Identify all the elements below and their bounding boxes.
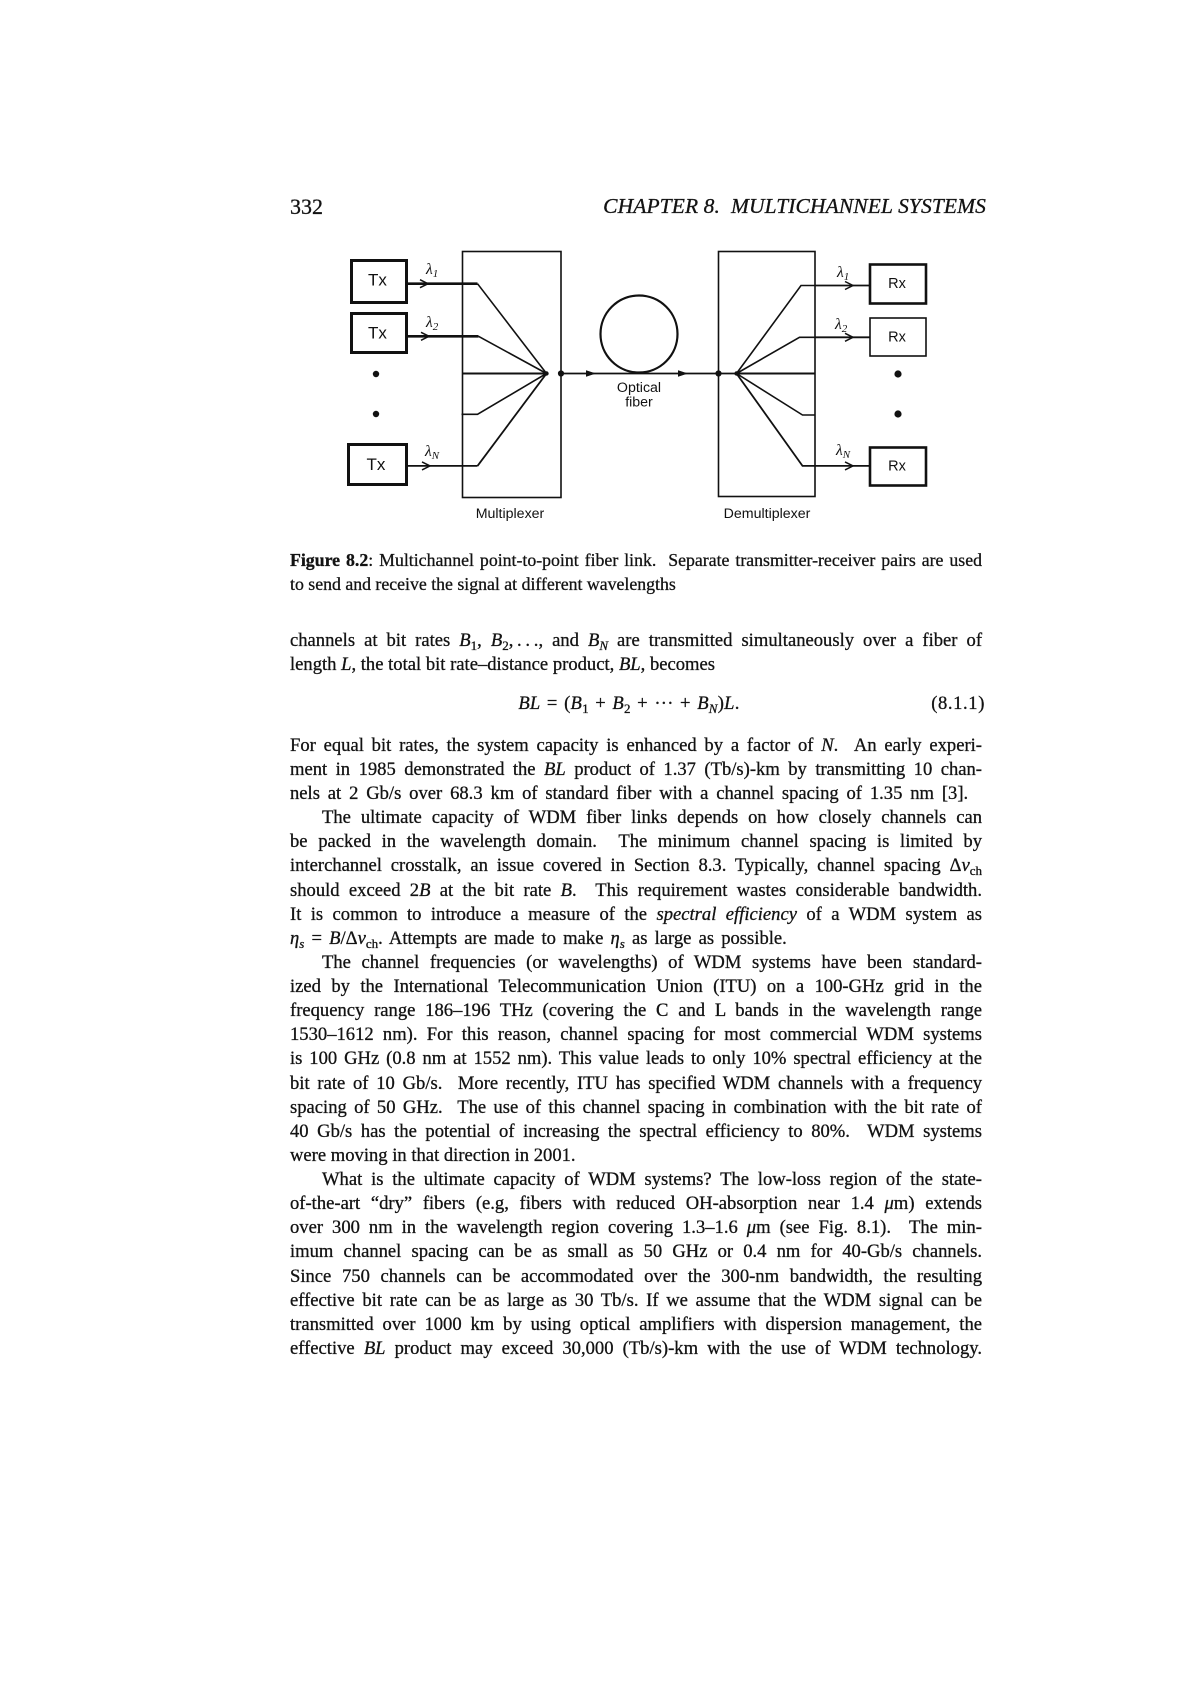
svg-text:Tx: Tx (367, 455, 386, 474)
svg-text:fiber: fiber (625, 395, 653, 411)
svg-text:λN: λN (835, 442, 851, 461)
svg-text:λ2: λ2 (834, 316, 848, 335)
svg-text:Demultiplexer: Demultiplexer (724, 506, 811, 522)
svg-text:Tx: Tx (368, 271, 387, 290)
svg-text:Rx: Rx (888, 459, 906, 475)
svg-text:λ1: λ1 (836, 264, 849, 283)
svg-text:Rx: Rx (888, 276, 906, 292)
svg-text:Multiplexer: Multiplexer (476, 506, 545, 522)
svg-text:λ1: λ1 (425, 261, 438, 280)
svg-text:Tx: Tx (368, 324, 387, 343)
svg-text:λN: λN (424, 443, 440, 462)
svg-text:λ2: λ2 (425, 314, 439, 333)
svg-text:Rx: Rx (888, 330, 906, 346)
